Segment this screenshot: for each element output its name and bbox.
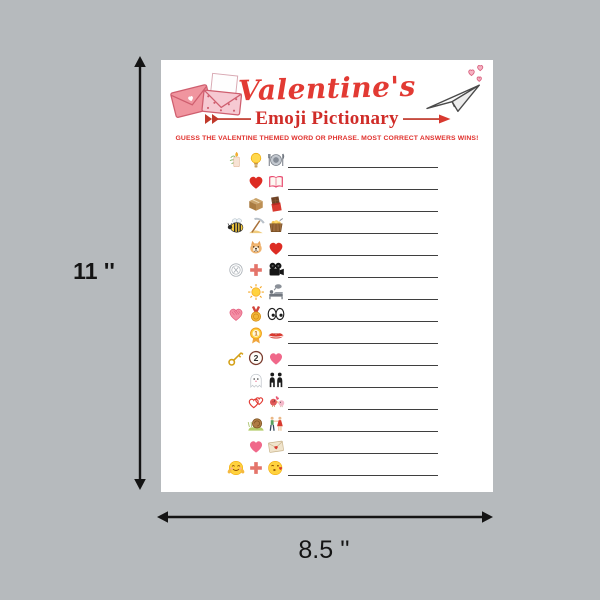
candle-icon [227,151,245,169]
answer-line [288,321,438,322]
movie-camera-icon [267,261,285,279]
light-bulb-icon [247,151,265,169]
emoji-clue-group [161,261,285,279]
love-birds-icon [267,393,285,411]
answer-line [288,365,438,366]
dancing-couple-icon [267,415,285,433]
emoji-clue-group [161,305,285,323]
answer-line [288,189,438,190]
answer-line [288,409,438,410]
sun-icon [247,283,265,301]
emoji-clue-group [161,239,285,257]
answer-line [288,343,438,344]
emoji-clue-group [161,349,285,367]
game-sheet: Valentine's Emoji Pictionary GUESS THE V… [161,60,493,492]
emoji-clue-group [161,151,285,169]
height-dimension-label: 11 '' [52,258,136,285]
plus-icon [247,459,265,477]
dinner-plate-outline-icon [227,261,245,279]
answer-line [288,453,438,454]
answer-line [288,387,438,388]
puzzle-row [161,457,493,479]
answer-line [288,277,438,278]
ghost-icon [247,371,265,389]
cupid-arrow-head-icon [403,113,451,125]
mockup-canvas: { "mockup": { "height_label": "11 ''", "… [0,0,600,600]
instructions-text: GUESS THE VALENTINE THEMED WORD OR PHRAS… [161,135,493,142]
love-letter-icon [267,437,285,455]
emoji-clue-group [161,415,285,433]
snail-icon [247,415,265,433]
puzzle-row [161,325,493,347]
hugging-face-icon [227,459,245,477]
width-dimension-arrow [157,510,493,524]
emoji-clue-group [161,459,285,477]
emoji-clue-group [161,371,285,389]
puzzle-row [161,391,493,413]
answer-line [288,431,438,432]
pickaxe-icon [247,217,265,235]
emoji-clue-group [161,327,285,345]
open-book-icon [267,173,285,191]
puzzle-row [161,303,493,325]
answer-line [288,255,438,256]
answer-line [288,233,438,234]
subtitle-row: Emoji Pictionary [161,107,493,131]
puzzle-list [161,149,493,479]
plus-icon [247,261,265,279]
card-header: Valentine's Emoji Pictionary GUESS THE V… [161,72,493,142]
bee-icon [227,217,245,235]
page-subtitle: Emoji Pictionary [255,108,399,130]
answer-line [288,475,438,476]
puzzle-row [161,369,493,391]
key-icon [227,349,245,367]
couple-icon [267,371,285,389]
puzzle-row [161,149,493,171]
person-in-bed-icon [267,283,285,301]
puzzle-row [161,281,493,303]
medal-icon [247,305,265,323]
eyes-icon [267,305,285,323]
gold-cart-icon [267,217,285,235]
chocolate-bar-icon [267,195,285,213]
puzzle-row [161,259,493,281]
puzzle-row [161,435,493,457]
plate-cutlery-icon [267,151,285,169]
emoji-clue-group [161,173,285,191]
emoji-clue-group [161,217,285,235]
puzzle-row [161,413,493,435]
answer-line [288,211,438,212]
package-box-icon [247,195,265,213]
kissing-face-icon [267,459,285,477]
red-heart-icon [247,173,265,191]
emoji-clue-group [161,393,285,411]
kiss-lips-icon [267,327,285,345]
cupid-arrow-tail-icon [203,113,251,125]
puzzle-row [161,237,493,259]
number-two-icon [247,349,265,367]
scribble-heart-icon [227,305,245,323]
red-heart-icon [267,239,285,257]
pink-heart-icon [247,437,265,455]
puzzle-row [161,193,493,215]
emoji-clue-group [161,437,285,455]
pink-heart-icon [267,349,285,367]
emoji-clue-group [161,283,285,301]
puppy-icon [247,239,265,257]
answer-line [288,299,438,300]
width-dimension-label: 8.5 '' [272,536,376,565]
first-place-rosette-icon [247,327,265,345]
emoji-clue-group [161,195,285,213]
puzzle-row [161,347,493,369]
answer-line [288,167,438,168]
page-title: Valentine's [161,68,494,111]
puzzle-row [161,171,493,193]
linked-hearts-icon [247,393,265,411]
puzzle-row [161,215,493,237]
